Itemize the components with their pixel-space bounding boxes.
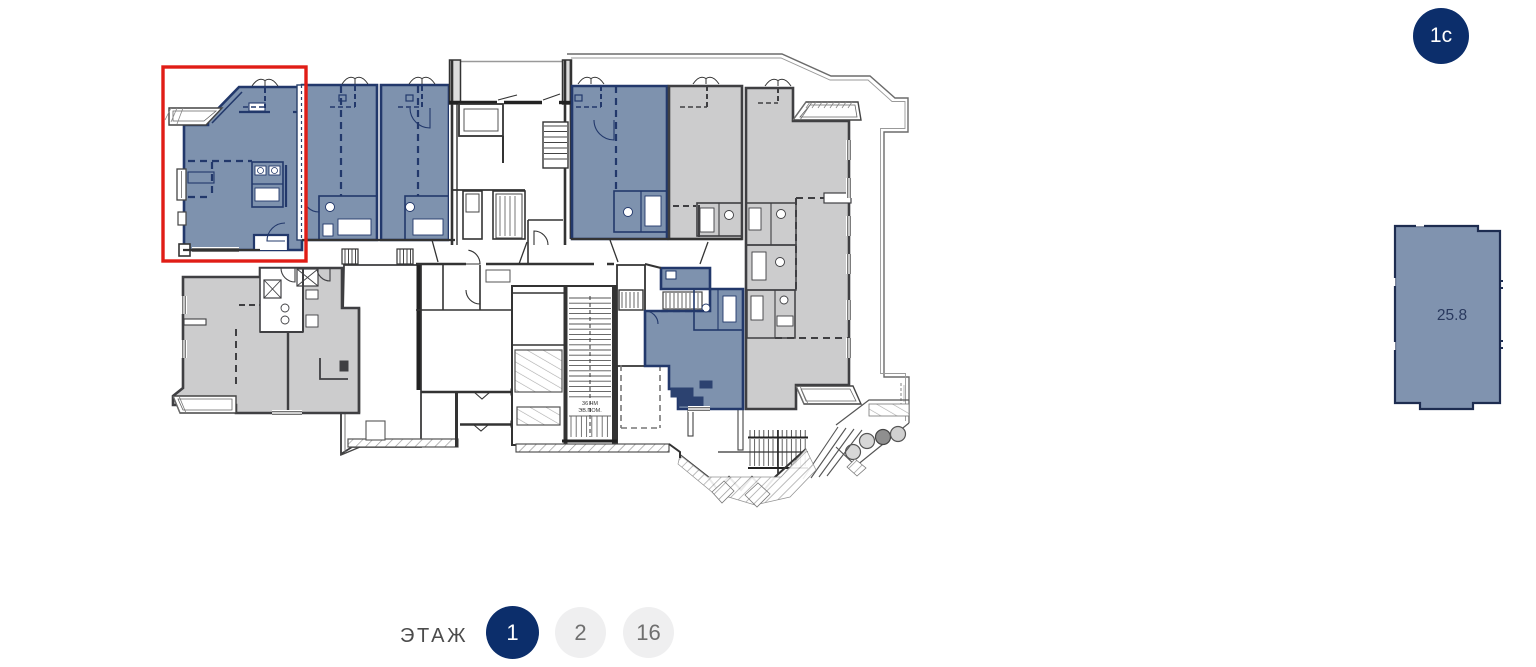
svg-text:25.8: 25.8 xyxy=(1437,307,1467,324)
svg-text:ЭВ.ПОМ.: ЭВ.ПОМ. xyxy=(578,408,602,414)
svg-text:36 ЧМ: 36 ЧМ xyxy=(582,401,598,407)
